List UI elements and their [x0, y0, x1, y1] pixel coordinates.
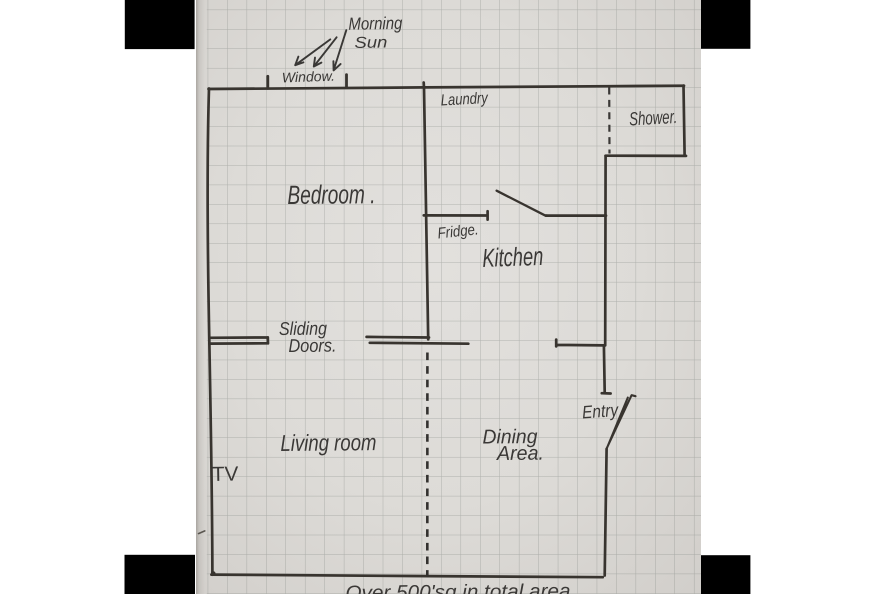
svg-text:Morning: Morning	[348, 13, 403, 34]
svg-text:TV: TV	[212, 463, 239, 486]
svg-text:Sun: Sun	[354, 34, 387, 52]
svg-text:Entry: Entry	[581, 400, 619, 423]
svg-text:Area.: Area.	[496, 443, 544, 465]
svg-text:Over 500'sq in total area: Over 500'sq in total area	[345, 581, 570, 594]
svg-text:Shower.: Shower.	[629, 107, 678, 130]
svg-text:Laundry: Laundry	[440, 90, 489, 109]
svg-text:Window.: Window.	[282, 68, 336, 86]
svg-text:Kitchen: Kitchen	[482, 241, 544, 273]
svg-text:Bedroom .: Bedroom .	[287, 179, 375, 210]
svg-text:Living room: Living room	[280, 429, 376, 456]
svg-text:Doors.: Doors.	[288, 335, 336, 356]
